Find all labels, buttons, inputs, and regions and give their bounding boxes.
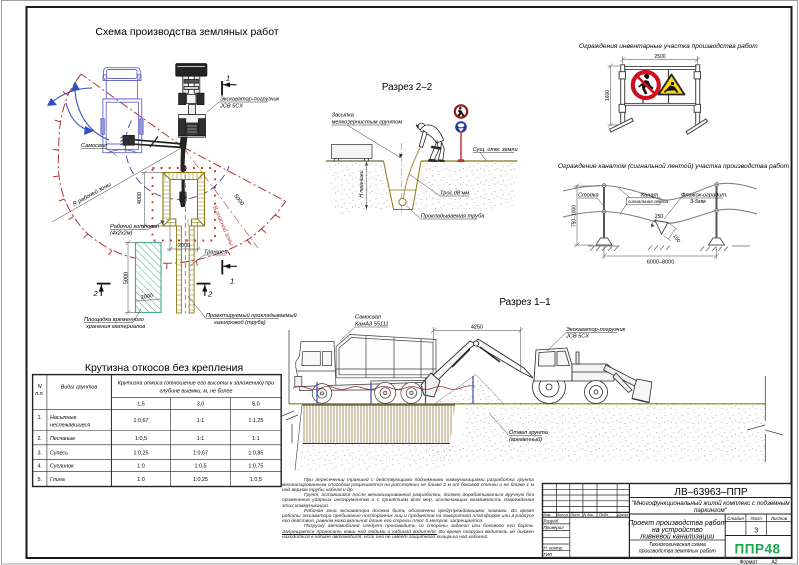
svg-text:3,0: 3,0: [197, 402, 205, 408]
svg-text:глубине выемки, м, не более: глубине выемки, м, не более: [160, 389, 233, 395]
svg-text:250: 250: [655, 214, 664, 220]
svg-text:Листов: Листов: [770, 516, 788, 521]
svg-text:Крутизна откоса (отношение его: Крутизна откоса (отношение его высоты к …: [118, 381, 274, 387]
svg-text:1:0,67: 1:0,67: [193, 451, 208, 457]
svg-text:3-5мм: 3-5мм: [690, 199, 706, 205]
svg-text:1:0,5: 1:0,5: [135, 436, 147, 442]
svg-text:N док.: N док.: [584, 513, 595, 517]
svg-text:Проверил: Проверил: [544, 525, 565, 530]
svg-text:1:0,67: 1:0,67: [134, 418, 149, 424]
svg-text:Площадка временного: Площадка временного: [84, 317, 144, 323]
svg-text:Дата: Дата: [617, 513, 628, 517]
svg-text:1:0,5: 1:0,5: [250, 477, 262, 483]
svg-text:Засыпка: Засыпка: [332, 113, 354, 119]
svg-text:1:0: 1:0: [137, 477, 145, 483]
svg-text:Ограждение канатом (сигнальной: Ограждение канатом (сигнальной лентой) у…: [558, 162, 790, 170]
svg-text:ЛВ–63963–ППР: ЛВ–63963–ППР: [674, 487, 748, 498]
svg-text:1: 1: [230, 277, 234, 286]
svg-text:паркингом": паркингом": [694, 507, 728, 514]
svg-text:Супесь: Супесь: [50, 451, 68, 457]
svg-text:Экскаватор-погрузчик: Экскаватор-погрузчик: [220, 97, 280, 103]
svg-text:1:1: 1:1: [197, 436, 205, 442]
svg-text:Суглинок: Суглинок: [50, 464, 74, 470]
svg-text:6000–8000: 6000–8000: [647, 260, 675, 266]
svg-text:неслежавшиеся: неслежавшиеся: [50, 423, 90, 429]
svg-text:мелкозернистым грунтом: мелкозернистым грунтом: [332, 120, 403, 126]
svg-text:2.: 2.: [37, 436, 42, 442]
svg-text:Траншея: Траншея: [204, 250, 227, 256]
svg-text:Стадия: Стадия: [727, 516, 744, 521]
svg-text:Кол.уч: Кол.уч: [557, 513, 568, 517]
svg-text:Лист: Лист: [750, 516, 763, 521]
svg-text:Ограждения инвентарные участка: Ограждения инвентарные участка производс…: [579, 42, 758, 50]
svg-text:Виды грунтов: Виды грунтов: [61, 385, 98, 391]
svg-text:п.п.: п.п.: [35, 391, 44, 397]
svg-text:Проектируемый прокладываемый: Проектируемый прокладываемый: [206, 312, 297, 319]
svg-text:Трос d8 мм: Трос d8 мм: [440, 191, 469, 197]
svg-text:Самосвал: Самосвал: [355, 315, 382, 321]
svg-text:Самосвал: Самосвал: [81, 143, 108, 149]
svg-text:Разрез 1–1: Разрез 1–1: [499, 297, 551, 308]
svg-text:1.: 1.: [37, 415, 42, 421]
svg-text:Проект производства работ: Проект производства работ: [628, 519, 726, 527]
svg-text:1:0: 1:0: [137, 464, 145, 470]
svg-text:Флажок-оградит.: Флажок-оградит.: [681, 193, 728, 199]
svg-text:ППР48: ППР48: [735, 542, 781, 557]
svg-text:(4х2х2м): (4х2х2м): [110, 231, 133, 237]
svg-text:Изм.: Изм.: [544, 513, 552, 517]
svg-text:Подп.: Подп.: [599, 513, 609, 517]
svg-text:3: 3: [754, 528, 758, 535]
svg-text:4000: 4000: [137, 192, 143, 204]
svg-text:1:1,25: 1:1,25: [248, 418, 263, 424]
svg-text:Разраб.: Разраб.: [544, 518, 560, 523]
svg-text:1: 1: [226, 74, 230, 83]
svg-text:Разрез 2–2: Разрез 2–2: [382, 82, 432, 93]
svg-text:сигнальная лента: сигнальная лента: [628, 199, 668, 204]
svg-text:1600: 1600: [605, 90, 611, 101]
svg-text:2: 2: [93, 289, 99, 298]
svg-text:1,5: 1,5: [137, 402, 145, 408]
svg-text:Сущ. отм. земли: Сущ. отм. земли: [473, 147, 518, 153]
svg-text:Стойка: Стойка: [578, 192, 599, 199]
svg-text:5000: 5000: [123, 272, 129, 284]
svg-text:1:0,25: 1:0,25: [134, 451, 149, 457]
svg-text:3.: 3.: [37, 451, 42, 457]
svg-text:Лист: Лист: [569, 513, 580, 517]
svg-text:2000: 2000: [178, 243, 190, 249]
svg-text:Крутизна откосов без крепления: Крутизна откосов без крепления: [85, 362, 243, 374]
svg-text:4250: 4250: [471, 325, 483, 331]
svg-text:N: N: [38, 384, 42, 390]
svg-text:1:1: 1:1: [252, 436, 260, 442]
svg-text:1:0,75: 1:0,75: [248, 464, 263, 470]
svg-text:JCB 5CX: JCB 5CX: [565, 334, 589, 340]
svg-text:Экскаватор-погрузчик: Экскаватор-погрузчик: [566, 327, 626, 333]
svg-text:"Многофункциональный жилой ком: "Многофункциональный жилой комплекс с по…: [631, 500, 790, 507]
svg-text:1:1: 1:1: [197, 418, 205, 424]
svg-text:Песчаные: Песчаные: [50, 436, 75, 442]
svg-text:2500: 2500: [654, 54, 665, 60]
svg-text:Схема производства земляных ра: Схема производства земляных работ: [95, 26, 278, 38]
svg-text:Н траншеи: Н траншеи: [359, 170, 365, 197]
svg-text:1:0,85: 1:0,85: [248, 451, 263, 457]
svg-text:Насыпные: Насыпные: [50, 415, 76, 421]
svg-text:хранения материалов: хранения материалов: [85, 324, 145, 330]
svg-text:производства земляных работ: производства земляных работ: [639, 549, 717, 555]
svg-text:ГИП: ГИП: [544, 552, 554, 557]
svg-text:(временный): (временный): [509, 436, 542, 443]
svg-text:Глина: Глина: [50, 477, 65, 483]
svg-text:газопровод (труба): газопровод (труба): [214, 320, 266, 326]
svg-text:750–1000: 750–1000: [572, 205, 578, 227]
svg-text:1:0,5: 1:0,5: [195, 464, 207, 470]
svg-text:Технологическая схема: Технологическая схема: [649, 542, 706, 548]
svg-text:КамАЗ 55111: КамАЗ 55111: [355, 322, 388, 328]
svg-text:5,0: 5,0: [252, 402, 260, 408]
svg-text:JCB 5CX: JCB 5CX: [219, 104, 243, 110]
svg-text:Отвал грунта: Отвал грунта: [509, 430, 548, 436]
svg-text:Рабочий котлован: Рабочий котлован: [110, 223, 159, 230]
svg-text:А2: А2: [771, 560, 777, 565]
svg-text:ливневой канализации: ливневой канализации: [639, 533, 714, 541]
svg-text:2: 2: [207, 290, 213, 299]
svg-text:4.: 4.: [37, 464, 42, 470]
svg-text:Прокладываемая труба: Прокладываемая труба: [421, 214, 485, 220]
svg-text:Н. контр.: Н. контр.: [544, 546, 564, 551]
svg-text:5.: 5.: [37, 477, 42, 483]
svg-text:Формат: Формат: [740, 560, 758, 565]
svg-text:1:0,25: 1:0,25: [193, 477, 208, 483]
